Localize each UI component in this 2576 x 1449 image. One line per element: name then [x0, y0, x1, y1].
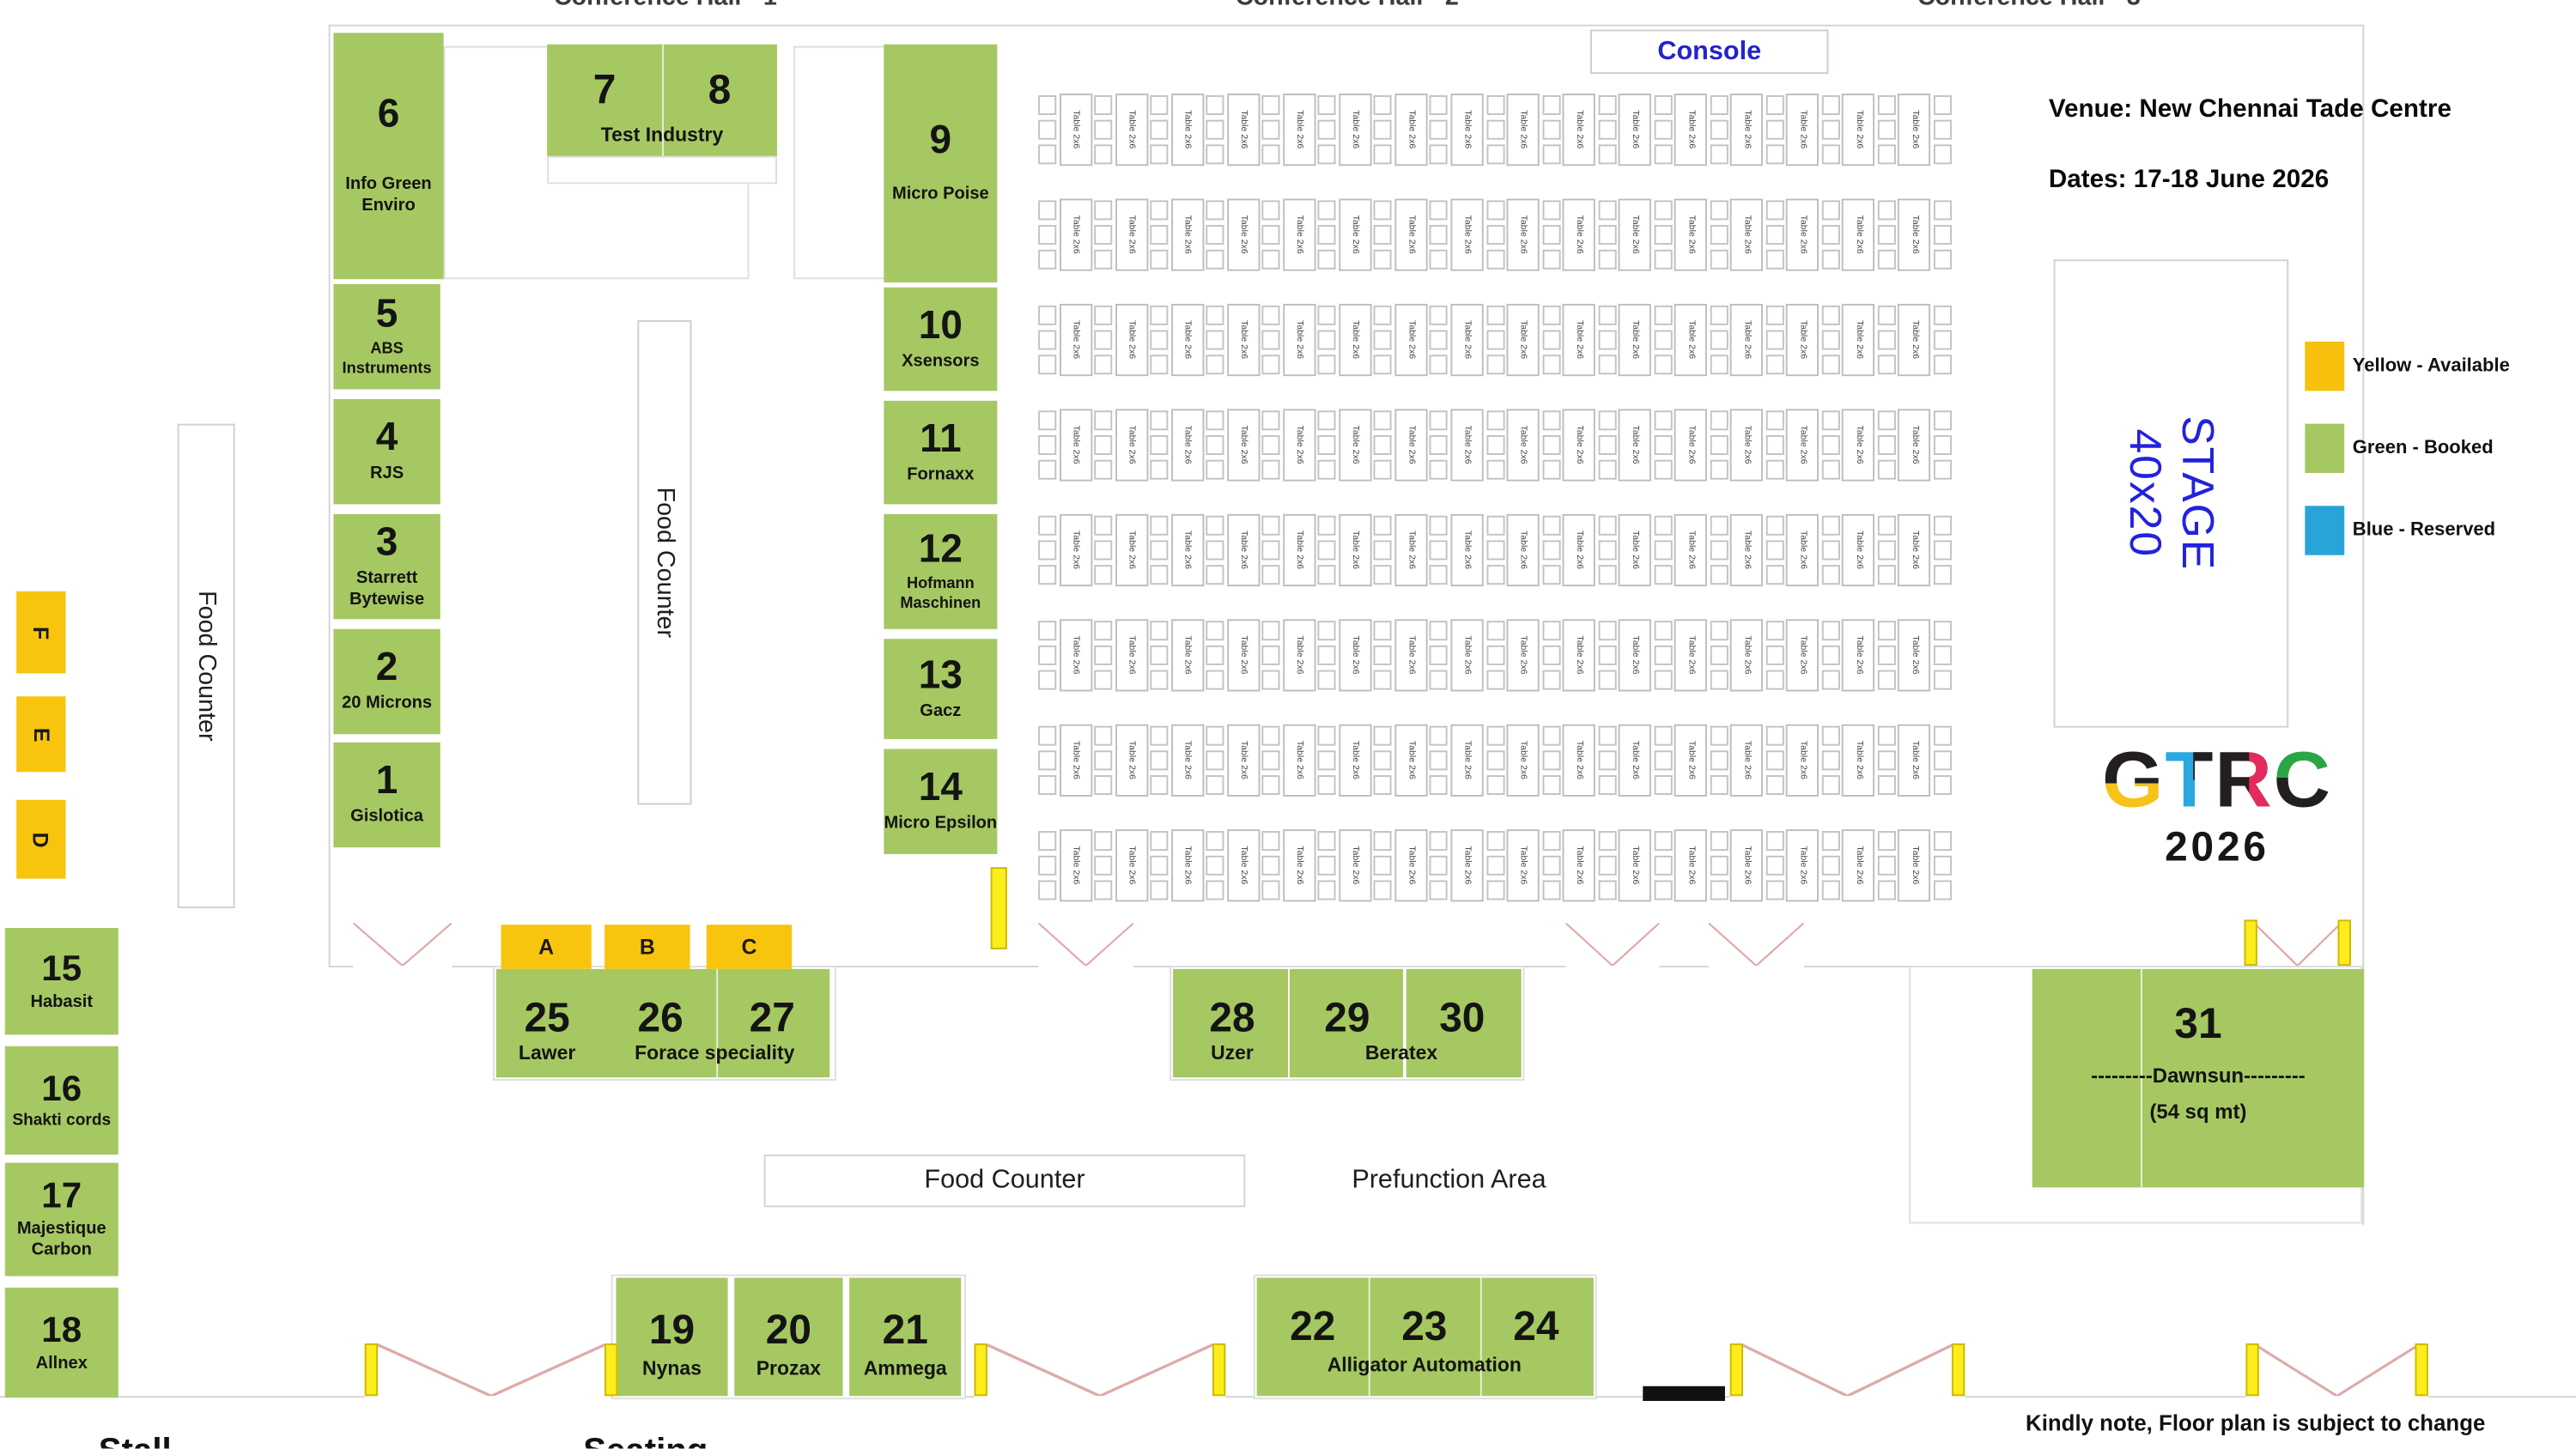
chair: [1094, 95, 1112, 115]
chair: [1262, 516, 1280, 536]
chair-column: [1262, 304, 1280, 376]
banquet-table: Table 2x6: [1394, 94, 1427, 166]
chair: [1542, 144, 1560, 164]
available-strip: [991, 867, 1007, 949]
booth-13: 13 Gacz: [884, 639, 997, 739]
chair: [1094, 831, 1112, 851]
banquet-table: Table 2x6: [1115, 199, 1147, 271]
chair: [1486, 540, 1504, 560]
banquet-table: Table 2x6: [1843, 514, 1875, 586]
banquet-table: Table 2x6: [1283, 829, 1315, 901]
chair: [1598, 726, 1616, 746]
chair: [1374, 621, 1392, 640]
chair: [1151, 856, 1169, 876]
chair-column: [1486, 409, 1504, 481]
chair: [1598, 516, 1616, 536]
banquet-table: Table 2x6: [1899, 829, 1931, 901]
chair-column: [1654, 409, 1672, 481]
chair: [1598, 200, 1616, 220]
banquet-table: Table 2x6: [1394, 304, 1427, 376]
chair: [1654, 306, 1672, 325]
chair-column: [1765, 409, 1783, 481]
chair: [1262, 670, 1280, 690]
chair-column: [1654, 829, 1672, 901]
chair: [1486, 831, 1504, 851]
chair: [1318, 250, 1336, 270]
chair: [1094, 646, 1112, 665]
chair: [1094, 726, 1112, 746]
door-swing-icon: [1709, 923, 1804, 966]
chair: [1598, 306, 1616, 325]
chair: [1542, 460, 1560, 480]
chair: [1486, 355, 1504, 374]
booth-18: 18 Allnex: [5, 1288, 118, 1397]
chair: [1318, 670, 1336, 690]
chair: [1878, 565, 1896, 585]
chair: [1934, 881, 1952, 900]
chair: [1151, 540, 1169, 560]
dates-text: Dates: 17-18 June 2026: [2049, 166, 2329, 195]
chair-column: [1206, 514, 1224, 586]
chair: [1598, 750, 1616, 770]
chair: [1038, 726, 1056, 746]
chair: [1654, 831, 1672, 851]
door-swing-icon: [2245, 1343, 2427, 1396]
wall-mid: [329, 966, 354, 967]
console-area: Console: [1590, 29, 1828, 74]
chair-column: [1486, 199, 1504, 271]
chair: [1374, 670, 1392, 690]
chair: [1654, 200, 1672, 220]
booth-31: 31 ---------Dawnsun--------- (54 sq mt): [2032, 969, 2364, 1187]
chair: [1765, 831, 1783, 851]
banquet-table: Table 2x6: [1339, 514, 1371, 586]
chair: [1430, 460, 1448, 480]
chair: [1374, 144, 1392, 164]
chair: [1878, 670, 1896, 690]
chair: [1430, 306, 1448, 325]
chair: [1654, 120, 1672, 140]
chair: [1878, 881, 1896, 900]
chair: [1038, 306, 1056, 325]
chair: [1374, 856, 1392, 876]
chair: [1318, 750, 1336, 770]
chair-column: [1598, 829, 1616, 901]
chair: [1262, 330, 1280, 350]
chair: [1878, 306, 1896, 325]
chair-column: [1206, 304, 1224, 376]
logo-letter-c: C: [2274, 743, 2332, 822]
booth-10: 10 Xsensors: [884, 288, 997, 391]
chair-column: [1151, 409, 1169, 481]
chair-column: [1430, 619, 1448, 691]
banquet-table: Table 2x6: [1171, 514, 1204, 586]
banquet-table: Table 2x6: [1619, 619, 1651, 691]
chair: [1822, 856, 1840, 876]
chair: [1038, 646, 1056, 665]
banquet-table: Table 2x6: [1115, 514, 1147, 586]
chair: [1038, 120, 1056, 140]
banquet-table: Table 2x6: [1730, 199, 1763, 271]
banquet-table: Table 2x6: [1450, 724, 1483, 797]
chair: [1765, 144, 1783, 164]
chair: [1598, 831, 1616, 851]
chair-column: [1038, 409, 1056, 481]
banquet-table: Table 2x6: [1899, 94, 1931, 166]
chair: [1486, 775, 1504, 795]
chair: [1934, 410, 1952, 430]
seating-row: Table 2x6Table 2x6Table 2x6Table 2x6Tabl…: [1038, 409, 1952, 481]
chair: [1710, 355, 1728, 374]
banquet-table: Table 2x6: [1115, 94, 1147, 166]
banquet-table: Table 2x6: [1674, 199, 1707, 271]
chair: [1710, 621, 1728, 640]
chair-column: [1094, 724, 1112, 797]
chair: [1151, 750, 1169, 770]
chair-column: [1654, 619, 1672, 691]
chair: [1262, 120, 1280, 140]
chair: [1038, 516, 1056, 536]
chair: [1878, 225, 1896, 245]
chair: [1934, 250, 1952, 270]
banquet-table: Table 2x6: [1730, 94, 1763, 166]
chair: [1038, 750, 1056, 770]
chair: [1654, 540, 1672, 560]
banquet-table: Table 2x6: [1115, 829, 1147, 901]
chair: [1598, 670, 1616, 690]
chair-column: [1934, 514, 1952, 586]
chair-column: [1822, 94, 1840, 166]
chair: [1934, 120, 1952, 140]
chair: [1822, 200, 1840, 220]
chair: [1430, 435, 1448, 455]
chair: [1598, 646, 1616, 665]
chair-column: [1934, 94, 1952, 166]
banquet-table: Table 2x6: [1843, 304, 1875, 376]
chair: [1430, 410, 1448, 430]
chair-column: [1206, 409, 1224, 481]
chair: [1486, 200, 1504, 220]
chair: [1934, 144, 1952, 164]
chair: [1206, 881, 1224, 900]
chair: [1486, 120, 1504, 140]
wall-bottom: [2428, 1396, 2576, 1397]
chair-column: [1542, 514, 1560, 586]
chair: [1206, 120, 1224, 140]
banquet-table: Table 2x6: [1786, 724, 1819, 797]
chair-column: [1430, 829, 1448, 901]
chair-column: [1765, 514, 1783, 586]
hall-title-1: Conference Hall - 1: [554, 0, 777, 11]
chair: [1710, 750, 1728, 770]
banquet-table: Table 2x6: [1227, 94, 1260, 166]
chair-column: [1206, 829, 1224, 901]
chair: [1038, 540, 1056, 560]
chair: [1878, 646, 1896, 665]
chair: [1934, 775, 1952, 795]
booth-4: 4 RJS: [333, 399, 440, 504]
banquet-table: Table 2x6: [1171, 199, 1204, 271]
chair: [1430, 621, 1448, 640]
chair: [1934, 621, 1952, 640]
chair: [1374, 95, 1392, 115]
chair: [1318, 410, 1336, 430]
chair: [1598, 565, 1616, 585]
chair: [1878, 831, 1896, 851]
chair: [1878, 540, 1896, 560]
chair: [1262, 621, 1280, 640]
wall-mid: [1659, 966, 1708, 967]
console-label: Console: [1657, 37, 1761, 66]
chair: [1374, 225, 1392, 245]
banquet-table: Table 2x6: [1450, 94, 1483, 166]
chair: [1094, 330, 1112, 350]
chair: [1094, 856, 1112, 876]
chair: [1654, 250, 1672, 270]
chair-column: [1262, 199, 1280, 271]
seating-row: Table 2x6Table 2x6Table 2x6Table 2x6Tabl…: [1038, 724, 1952, 797]
chair: [1822, 565, 1840, 585]
chair: [1934, 225, 1952, 245]
chair: [1094, 540, 1112, 560]
chair: [1765, 250, 1783, 270]
chair: [1822, 775, 1840, 795]
chair: [1374, 646, 1392, 665]
logo-letter-r: R: [2215, 743, 2273, 822]
chair: [1934, 516, 1952, 536]
chair-column: [1151, 304, 1169, 376]
chair: [1038, 670, 1056, 690]
chair-column: [1878, 94, 1896, 166]
food-counter-middle: Food Counter: [637, 320, 691, 804]
chair: [1654, 775, 1672, 795]
banquet-table: Table 2x6: [1619, 514, 1651, 586]
chair: [1710, 95, 1728, 115]
banquet-table: Table 2x6: [1619, 724, 1651, 797]
chair: [1654, 144, 1672, 164]
chair-column: [1430, 94, 1448, 166]
chair-column: [1151, 199, 1169, 271]
chair: [1934, 565, 1952, 585]
chair: [1486, 250, 1504, 270]
chair-column: [1094, 199, 1112, 271]
chair: [1486, 306, 1504, 325]
chair: [1654, 410, 1672, 430]
seating-section-label: Seating: [583, 1432, 708, 1448]
chair: [1094, 250, 1112, 270]
banquet-table: Table 2x6: [1730, 409, 1763, 481]
venue-text: Venue: New Chennai Tade Centre: [2049, 95, 2451, 124]
chair-column: [1654, 514, 1672, 586]
legend-swatch-reserved: [2305, 506, 2344, 555]
banquet-table: Table 2x6: [1171, 724, 1204, 797]
banquet-table: Table 2x6: [1619, 304, 1651, 376]
booth-19-20-21: 19 20 21 Nynas Prozax Ammega: [616, 1278, 961, 1397]
chair: [1654, 646, 1672, 665]
banquet-table: Table 2x6: [1450, 409, 1483, 481]
banquet-table: Table 2x6: [1674, 829, 1707, 901]
door-swing-icon: [1565, 923, 1659, 966]
chair: [1318, 144, 1336, 164]
chair: [1765, 856, 1783, 876]
banquet-table: Table 2x6: [1507, 304, 1540, 376]
chair: [1710, 306, 1728, 325]
chair: [1430, 200, 1448, 220]
chair: [1822, 831, 1840, 851]
chair: [1598, 120, 1616, 140]
chair: [1486, 670, 1504, 690]
chair: [1598, 355, 1616, 374]
chair: [1878, 856, 1896, 876]
chair: [1094, 621, 1112, 640]
chair: [1318, 646, 1336, 665]
chair: [1374, 250, 1392, 270]
chair: [1151, 726, 1169, 746]
chair: [1654, 435, 1672, 455]
chair-column: [1934, 724, 1952, 797]
chair-column: [1598, 94, 1616, 166]
banquet-table: Table 2x6: [1283, 94, 1315, 166]
chair: [1430, 726, 1448, 746]
chair: [1374, 330, 1392, 350]
chair: [1822, 516, 1840, 536]
chair: [1710, 120, 1728, 140]
chair-column: [1765, 829, 1783, 901]
empty-stall-outline: [547, 156, 777, 185]
chair-column: [1542, 304, 1560, 376]
chair: [1318, 516, 1336, 536]
chair: [1206, 831, 1224, 851]
chair: [1206, 670, 1224, 690]
banquet-table: Table 2x6: [1227, 619, 1260, 691]
legend-swatch-booked: [2305, 424, 2344, 473]
chair: [1262, 355, 1280, 374]
banquet-table: Table 2x6: [1171, 619, 1204, 691]
chair: [1318, 621, 1336, 640]
chair: [1374, 435, 1392, 455]
chair: [1878, 330, 1896, 350]
banquet-table: Table 2x6: [1283, 304, 1315, 376]
chair: [1765, 540, 1783, 560]
seating-row: Table 2x6Table 2x6Table 2x6Table 2x6Tabl…: [1038, 829, 1952, 901]
chair: [1822, 540, 1840, 560]
chair: [1822, 250, 1840, 270]
chair: [1878, 410, 1896, 430]
chair-column: [1542, 409, 1560, 481]
chair: [1206, 95, 1224, 115]
door-swing-icon: [2245, 919, 2351, 966]
chair-column: [1151, 514, 1169, 586]
chair: [1318, 540, 1336, 560]
banquet-table: Table 2x6: [1339, 94, 1371, 166]
slot-A: A: [501, 925, 592, 969]
chair-column: [1934, 304, 1952, 376]
legend-swatch-available: [2305, 342, 2344, 391]
chair-column: [1654, 724, 1672, 797]
chair: [1934, 355, 1952, 374]
chair-column: [1374, 94, 1392, 166]
banquet-table: Table 2x6: [1786, 829, 1819, 901]
booth-9: 9 Micro Poise: [884, 45, 997, 282]
banquet-table: Table 2x6: [1619, 829, 1651, 901]
chair: [1374, 540, 1392, 560]
chair: [1765, 775, 1783, 795]
chair-column: [1318, 304, 1336, 376]
chair: [1542, 540, 1560, 560]
chair: [1486, 565, 1504, 585]
chair: [1822, 750, 1840, 770]
chair-column: [1206, 724, 1224, 797]
chair: [1151, 565, 1169, 585]
banquet-table: Table 2x6: [1450, 199, 1483, 271]
chair-column: [1598, 514, 1616, 586]
chair: [1486, 881, 1504, 900]
chair: [1206, 144, 1224, 164]
chair: [1486, 435, 1504, 455]
chair-column: [1374, 514, 1392, 586]
banquet-table: Table 2x6: [1563, 304, 1595, 376]
chair-column: [1151, 829, 1169, 901]
chair: [1542, 856, 1560, 876]
chair: [1710, 410, 1728, 430]
chair: [1765, 330, 1783, 350]
chair-column: [1654, 94, 1672, 166]
chair: [1151, 646, 1169, 665]
chair-column: [1486, 304, 1504, 376]
chair: [1878, 460, 1896, 480]
chair: [1542, 881, 1560, 900]
chair: [1934, 306, 1952, 325]
seating-row: Table 2x6Table 2x6Table 2x6Table 2x6Tabl…: [1038, 94, 1952, 166]
banquet-table: Table 2x6: [1339, 409, 1371, 481]
booth-22-23-24: 22 23 24 Alligator Automation: [1257, 1278, 1594, 1397]
chair: [1430, 831, 1448, 851]
banquet-table: Table 2x6: [1171, 304, 1204, 376]
chair: [1430, 120, 1448, 140]
chair: [1710, 565, 1728, 585]
chair: [1094, 410, 1112, 430]
chair: [1654, 856, 1672, 876]
chair: [1038, 881, 1056, 900]
chair-column: [1934, 199, 1952, 271]
chair: [1486, 750, 1504, 770]
banquet-table: Table 2x6: [1283, 514, 1315, 586]
chair: [1206, 306, 1224, 325]
hall-title-3: Conference Hall - 3: [1917, 0, 2141, 11]
banquet-table: Table 2x6: [1394, 199, 1427, 271]
chair: [1430, 856, 1448, 876]
chair: [1430, 355, 1448, 374]
banquet-table: Table 2x6: [1674, 724, 1707, 797]
chair: [1206, 775, 1224, 795]
banquet-table: Table 2x6: [1450, 514, 1483, 586]
booth-15: 15 Habasit: [5, 928, 118, 1034]
chair-column: [1822, 409, 1840, 481]
wall-left: [329, 25, 331, 966]
chair: [1542, 646, 1560, 665]
chair: [1486, 460, 1504, 480]
banquet-table: Table 2x6: [1115, 619, 1147, 691]
chair-column: [1430, 199, 1448, 271]
chair: [1151, 355, 1169, 374]
banquet-table: Table 2x6: [1507, 514, 1540, 586]
chair: [1822, 120, 1840, 140]
booth-1: 1 Gislotica: [333, 743, 440, 847]
banquet-table: Table 2x6: [1394, 619, 1427, 691]
chair: [1151, 410, 1169, 430]
banquet-table: Table 2x6: [1899, 724, 1931, 797]
banquet-table: Table 2x6: [1563, 514, 1595, 586]
